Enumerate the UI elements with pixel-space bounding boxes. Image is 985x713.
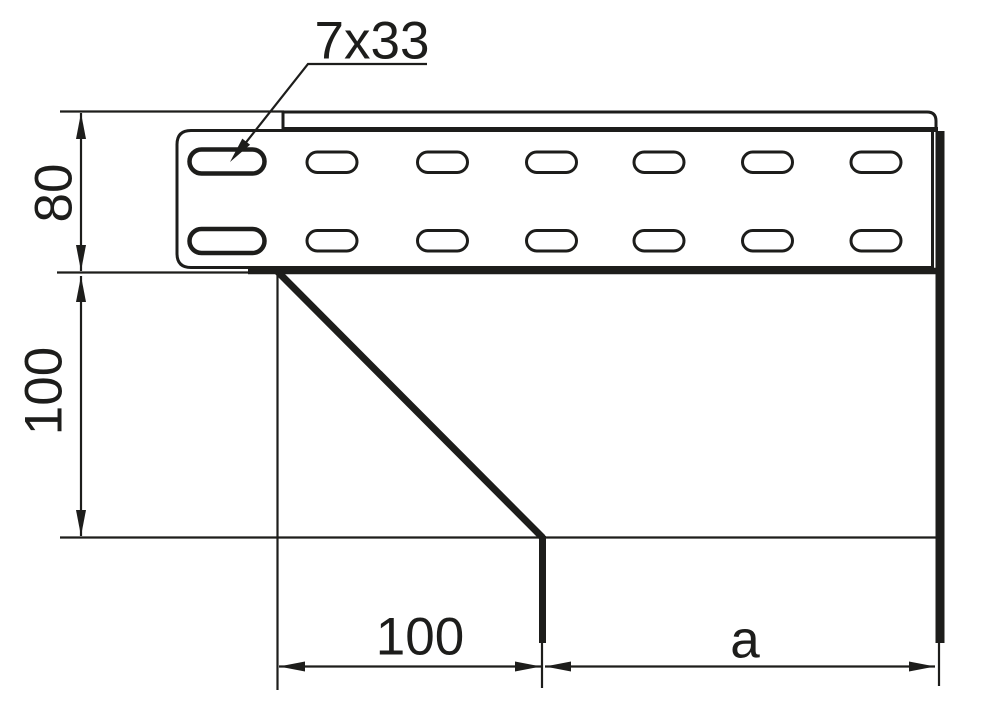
extension-lines xyxy=(60,273,939,690)
slot xyxy=(851,152,901,173)
arrowhead-up-icon xyxy=(76,113,86,139)
perforated-rail xyxy=(177,112,938,268)
dimension-drop-height: 100 xyxy=(15,276,87,536)
arrowhead-right-icon xyxy=(909,662,935,672)
slot xyxy=(634,231,684,252)
slot-callout: 7x33 xyxy=(230,12,429,163)
slot xyxy=(527,152,577,173)
slot xyxy=(851,231,901,252)
slot xyxy=(743,231,793,252)
arrowhead-down-icon xyxy=(76,510,86,536)
arrowhead-right-icon xyxy=(515,662,541,672)
slot xyxy=(634,152,684,173)
callout-label: 7x33 xyxy=(315,12,430,71)
dim-100-left-label: 100 xyxy=(15,347,74,435)
arrowhead-down-icon xyxy=(76,245,86,271)
callout-leader-line xyxy=(236,64,427,155)
slot xyxy=(418,152,468,173)
slot xyxy=(307,231,357,252)
callout-target-slot-row2 xyxy=(190,229,265,253)
slot xyxy=(527,231,577,252)
arrowhead-left-icon xyxy=(545,662,571,672)
arrowhead-up-icon xyxy=(76,276,86,302)
arrowhead-left-icon xyxy=(279,662,305,672)
dim-100-bottom-label: 100 xyxy=(376,608,464,667)
rail-top-strip xyxy=(283,112,936,129)
part-outline xyxy=(248,131,945,643)
dim-80-label: 80 xyxy=(25,164,84,223)
dimension-variable-width: a xyxy=(545,611,935,672)
technical-drawing-canvas: 7x33 80 100 1 xyxy=(0,0,985,713)
dim-a-label: a xyxy=(730,611,760,670)
dimension-offset-width: 100 xyxy=(279,608,541,672)
part-diagonal-edge xyxy=(276,270,543,538)
slot xyxy=(418,231,468,252)
slot xyxy=(743,152,793,173)
callout-target-slot xyxy=(190,150,265,174)
reducer-side-view-drawing: 7x33 80 100 1 xyxy=(0,0,985,713)
slot xyxy=(307,152,357,173)
